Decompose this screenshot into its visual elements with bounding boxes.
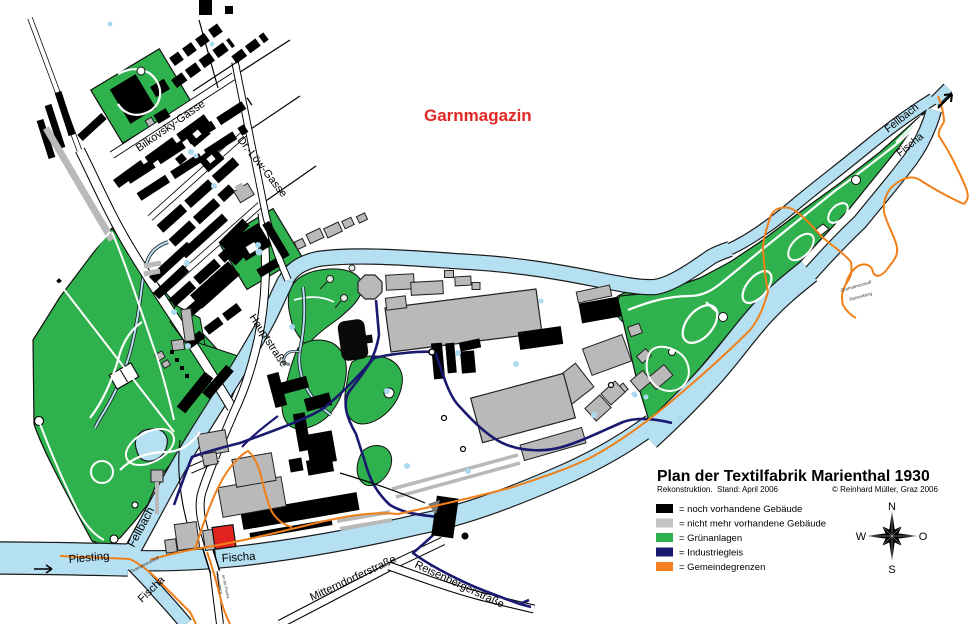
svg-text:Rekonstruktion. Stand: April: Rekonstruktion. Stand: April 2006 [657, 485, 779, 494]
svg-text:W: W [856, 531, 867, 543]
svg-text:Garnmagazin: Garnmagazin [424, 106, 532, 125]
svg-text:= noch vorhandene Gebäude: = noch vorhandene Gebäude [679, 504, 802, 515]
svg-text:N: N [888, 501, 896, 513]
svg-text:S: S [888, 564, 895, 576]
svg-text:= nicht mehr vorhandene Gebäud: = nicht mehr vorhandene Gebäude [679, 519, 826, 530]
svg-text:= Gemeindegrenzen: = Gemeindegrenzen [679, 562, 765, 573]
svg-text:= Grünanlagen: = Grünanlagen [679, 533, 742, 544]
svg-text:© Reinhard Müller, Graz 2006: © Reinhard Müller, Graz 2006 [832, 485, 938, 494]
svg-text:O: O [919, 531, 928, 543]
svg-text:= Industriegleis: = Industriegleis [679, 548, 743, 559]
svg-text:Plan der Textilfabrik Marienth: Plan der Textilfabrik Marienthal 1930 [657, 468, 930, 485]
svg-text:Fischa: Fischa [221, 551, 256, 565]
